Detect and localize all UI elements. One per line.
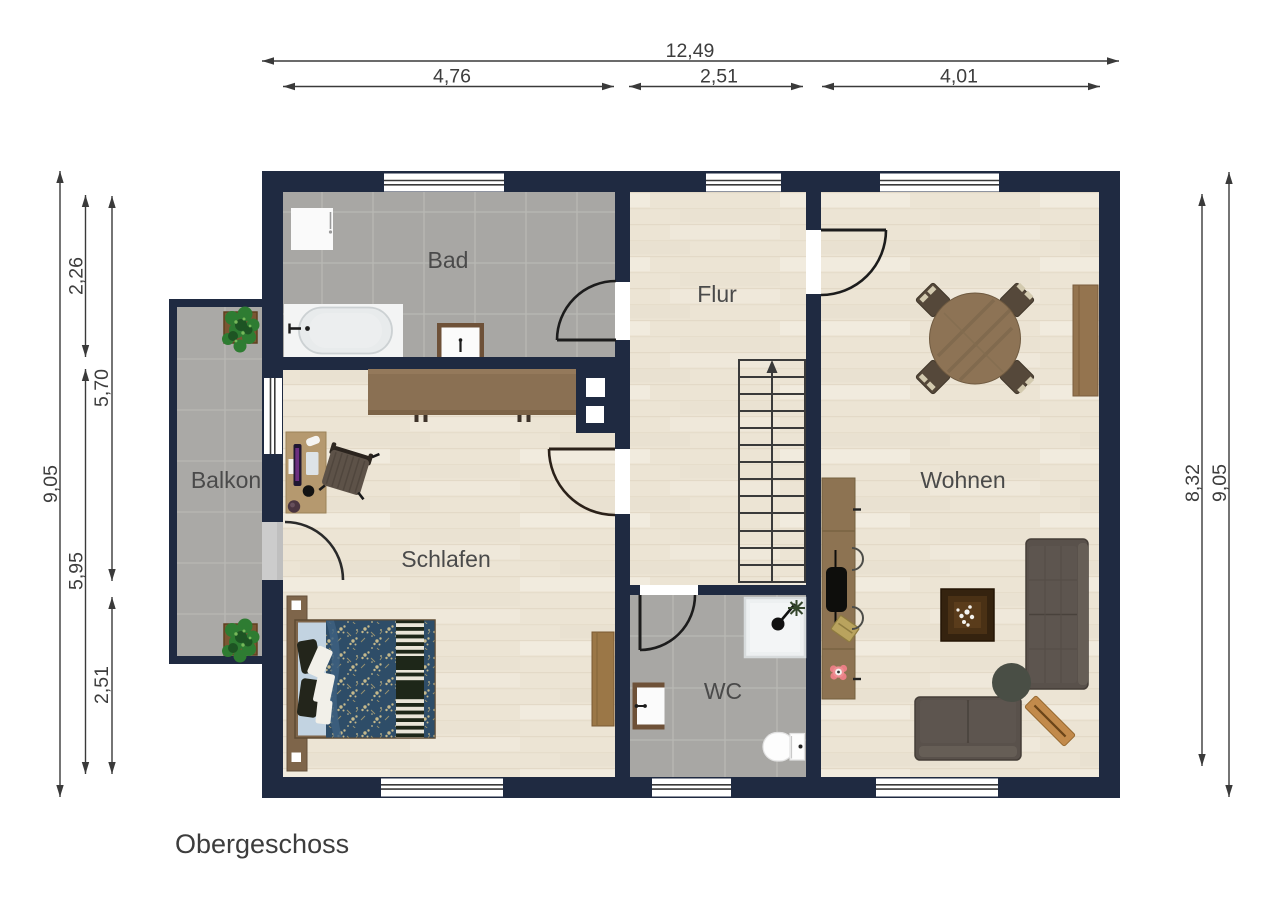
svg-text:2,26: 2,26	[66, 257, 88, 295]
svg-text:Flur: Flur	[697, 281, 737, 307]
svg-text:9,05: 9,05	[1209, 464, 1231, 502]
svg-text:5,95: 5,95	[66, 552, 88, 590]
svg-text:5,70: 5,70	[91, 369, 113, 407]
svg-text:Balkon: Balkon	[191, 467, 261, 493]
svg-text:2,51: 2,51	[700, 66, 738, 88]
svg-text:Obergeschoss: Obergeschoss	[175, 829, 349, 859]
svg-text:4,01: 4,01	[940, 66, 978, 88]
svg-text:12,49: 12,49	[666, 40, 715, 62]
svg-text:Schlafen: Schlafen	[401, 546, 491, 572]
svg-text:9,05: 9,05	[40, 465, 62, 503]
svg-text:WC: WC	[704, 678, 742, 704]
svg-text:Wohnen: Wohnen	[920, 467, 1005, 493]
svg-text:8,32: 8,32	[1182, 464, 1204, 502]
svg-text:Bad: Bad	[428, 247, 469, 273]
svg-text:4,76: 4,76	[433, 66, 471, 88]
svg-text:2,51: 2,51	[91, 666, 113, 704]
